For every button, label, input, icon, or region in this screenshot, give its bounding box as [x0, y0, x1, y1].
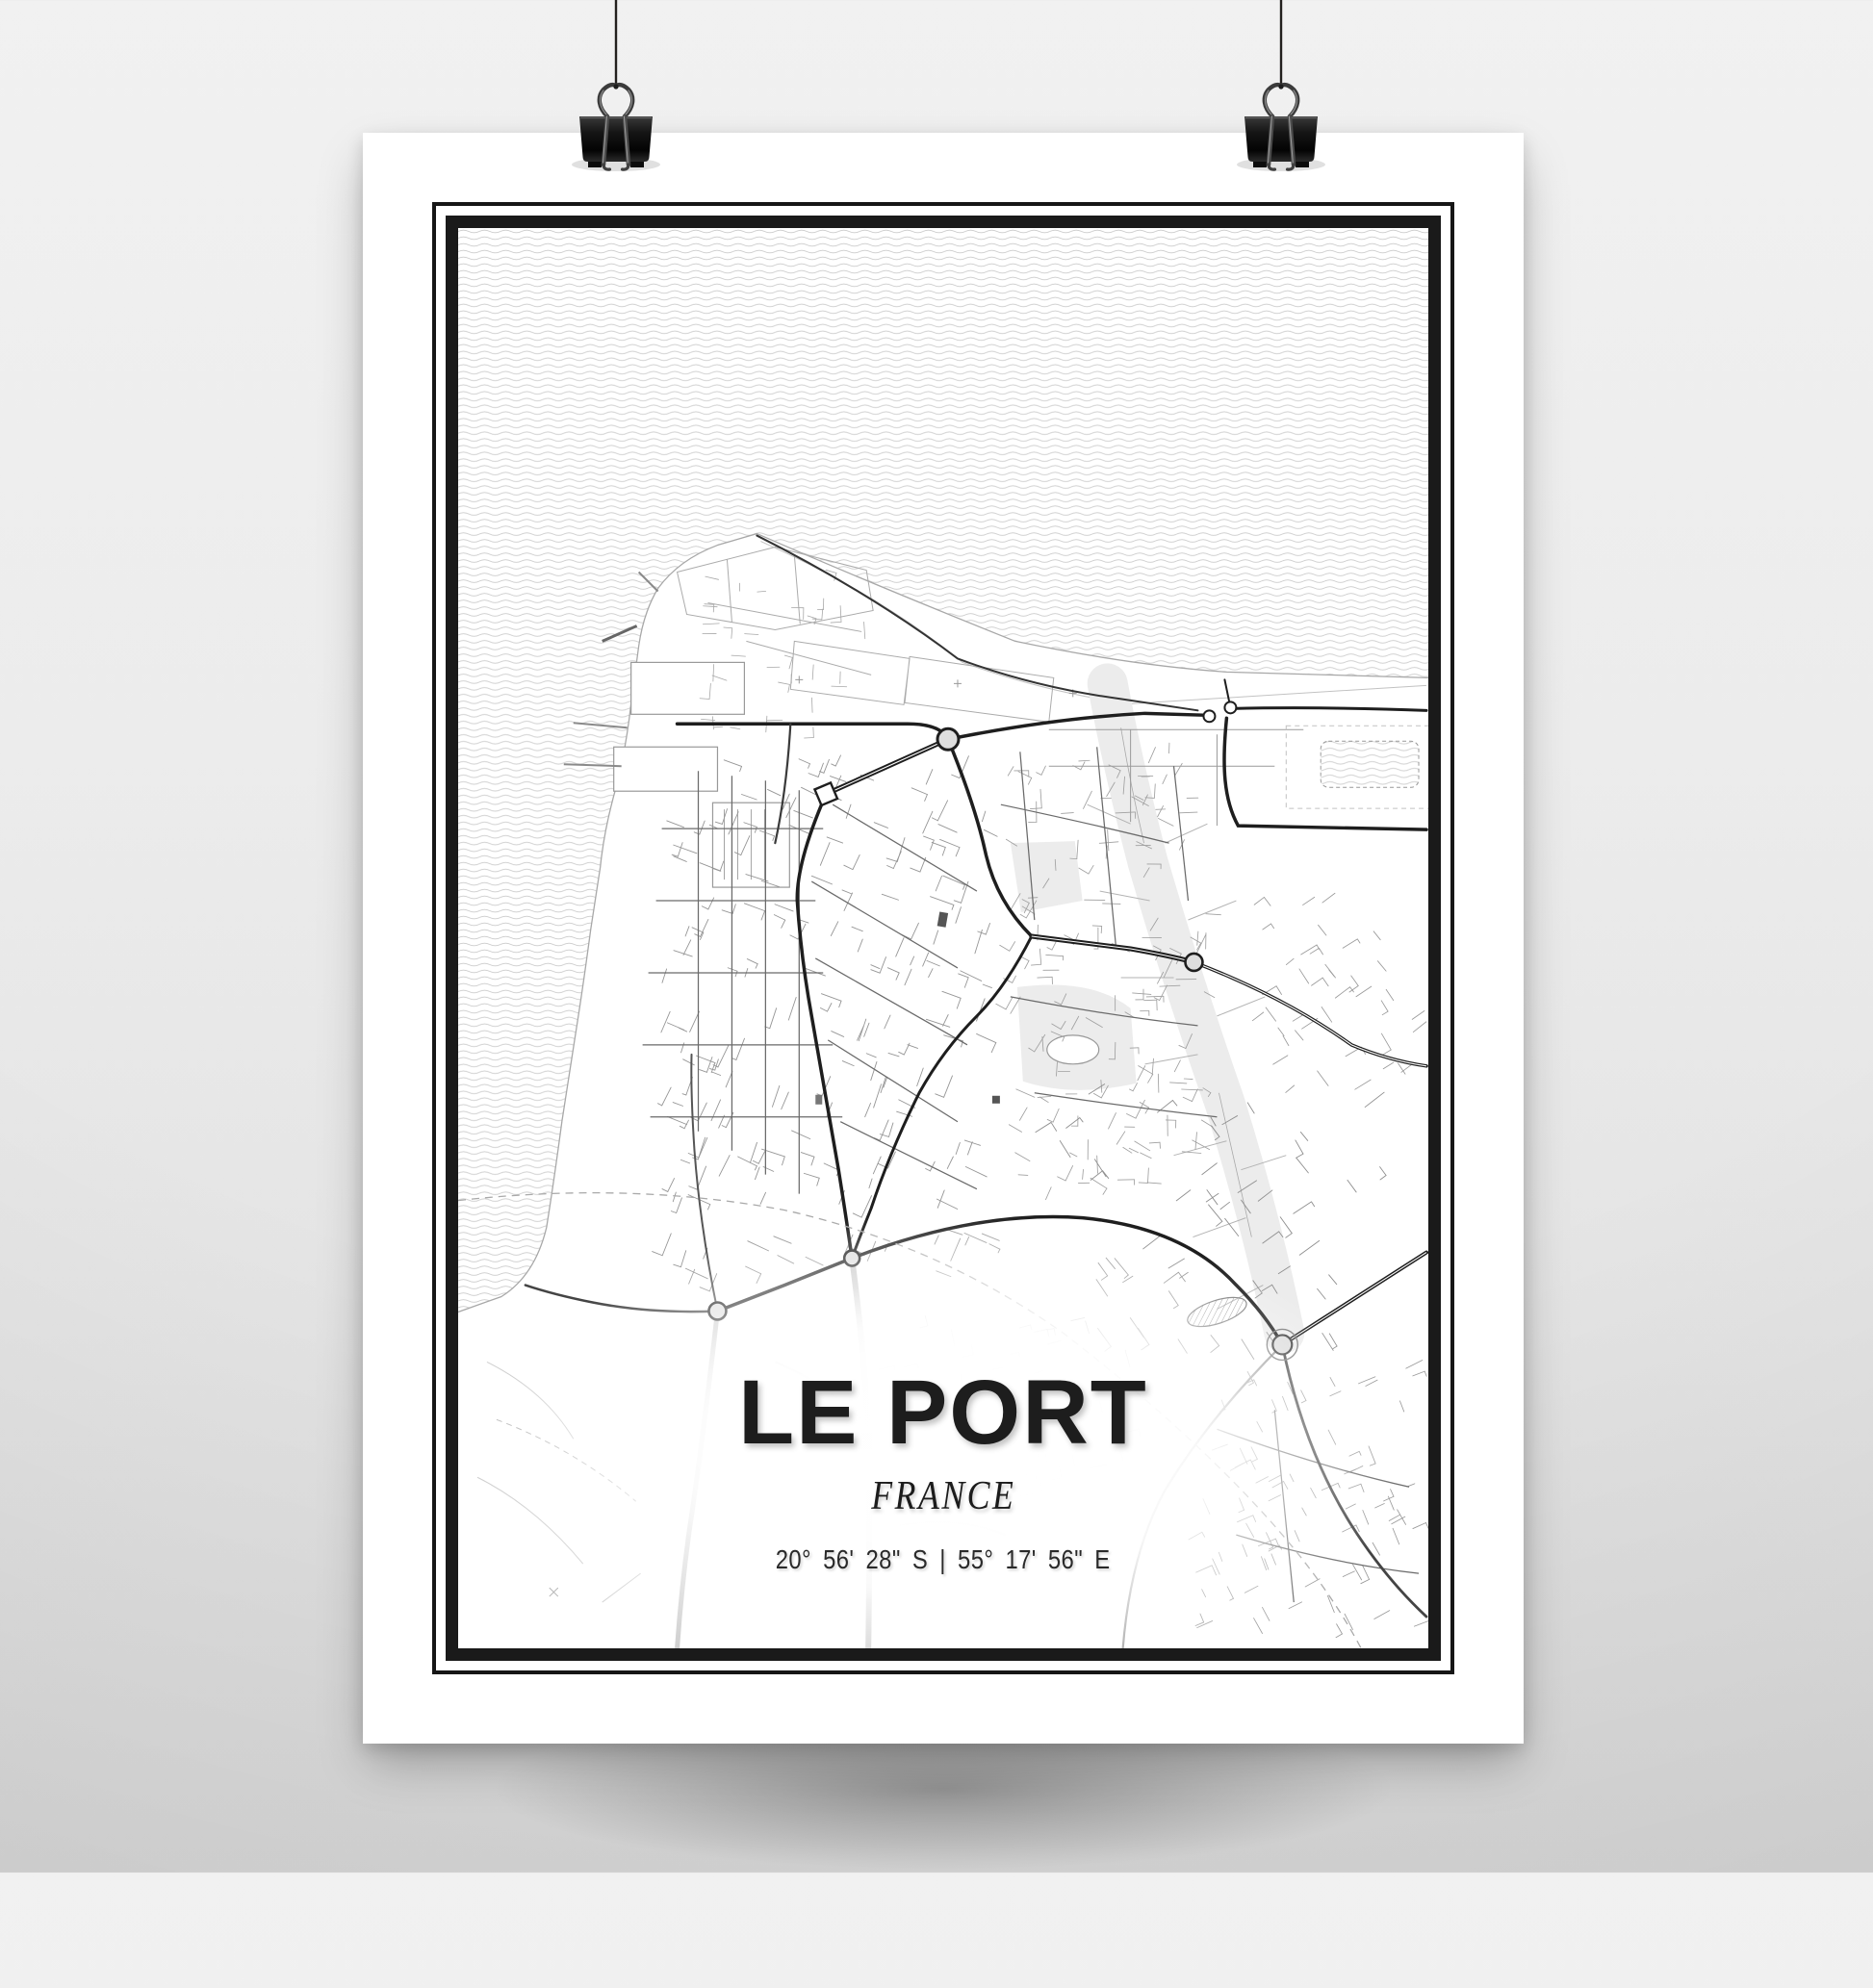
title-halo-core [627, 1281, 1261, 1608]
clip-wire-handle [1265, 84, 1297, 116]
pond [1047, 1035, 1099, 1064]
poster: LE PORT FRANCE 20° 56' 28" S | 55° 17' 5… [363, 133, 1524, 1744]
binder-clip-icon [1233, 0, 1329, 173]
poster-drop-shadow [318, 1719, 1569, 1988]
binder-clip-right [1233, 0, 1329, 173]
binder-clip-left [568, 0, 664, 173]
scene: LE PORT FRANCE 20° 56' 28" S | 55° 17' 5… [0, 0, 1873, 1873]
binder-clip-icon [568, 0, 664, 173]
clip-body [1244, 116, 1318, 162]
city-map [458, 228, 1428, 1648]
map-area [458, 228, 1428, 1648]
clip-body [579, 116, 653, 162]
clip-wire-handle [600, 84, 632, 116]
